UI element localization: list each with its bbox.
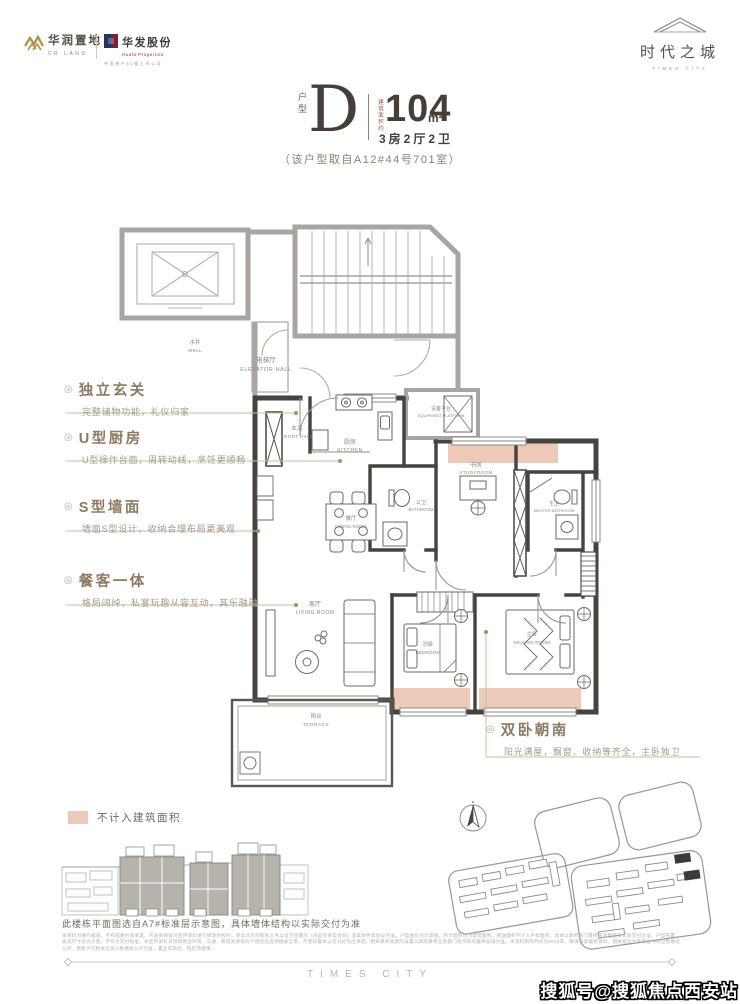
area-unit: m²: [428, 111, 443, 125]
annotation-kitchen-title: U型厨房: [79, 427, 143, 448]
rooms-summary: 3房2厅2卫: [379, 130, 453, 147]
annotation-entrance-desc: 完整储物功能，礼仪归家: [82, 405, 294, 418]
key-plan-caption: 此楼栋平面图选自A7#标准层示意图，具体墙体结构以实际交付为准: [62, 917, 361, 930]
annotation-dining-title: 餐客一体: [79, 570, 147, 591]
label-study-cn: 书房: [470, 461, 482, 469]
label-study-en: STUDYROOM: [459, 470, 492, 475]
label-elevator-hall-en: ELEVATOR HALL: [240, 367, 292, 373]
label-bathroom-cn: 公卫: [416, 500, 426, 506]
timescity-logo: 时代之城 TIMES CITY: [630, 16, 730, 71]
label-bedroom-cn: 次卧: [422, 640, 434, 648]
building-key-plan: [62, 843, 308, 916]
label-master-bath-cn: 主卫: [549, 500, 559, 507]
label-terrace-cn: 阳台: [310, 712, 322, 720]
bullet-icon: ◎: [64, 502, 73, 512]
annotation-entrance: ◎ 独立玄关 完整储物功能，礼仪归家: [64, 379, 294, 418]
label-bathroom-en: BATHROOM: [408, 507, 433, 512]
label-master-bath-en: MASTER BATHROOM: [534, 508, 575, 513]
label-equipment-cn: 设备平台: [431, 405, 451, 412]
label-living-en: LIVING ROOM: [296, 610, 335, 616]
terrace-walls: [232, 700, 392, 786]
area-prefix: 建筑面积约: [376, 99, 384, 132]
label-kitchen-cn: 厨房: [344, 438, 356, 446]
annotation-dining-desc: 格局阔绰，私宴玩趣从容互动，其乐融融: [82, 596, 294, 609]
legend-label: 不计入建筑面积: [97, 810, 181, 825]
legend: 不计入建筑面积: [68, 810, 181, 825]
annotation-wall-desc: 墙面S型设计，收纳合理布局更美观: [82, 522, 294, 535]
stair-symbol: [300, 231, 452, 334]
disclaimer-text: 本资料为要约邀请，不构成要约或承诺。开发商保留对宣传资料进行修改的权利，买卖双方…: [62, 933, 680, 952]
label-master-room-en: MASTER ROOM: [514, 640, 550, 646]
annotation-wall: ◎ S型墙面 墙面S型设计，收纳合理布局更美观: [64, 496, 294, 535]
huafa-square-icon: [104, 34, 118, 48]
annotation-kitchen-desc: U型操作台面，周转动线，烹饪更顺畅: [82, 453, 294, 466]
huafa-tagline: 中国地产50强上市公司: [104, 61, 172, 67]
bullet-icon: ◎: [64, 576, 73, 586]
bullet-icon: ◎: [64, 385, 73, 395]
ladder-shaft: [581, 552, 596, 596]
compass-icon: [460, 801, 486, 831]
annotation-kitchen: ◎ U型厨房 U型操作台面，周转动线，烹饪更顺畅: [64, 427, 294, 466]
annotation-dining: ◎ 餐客一体 格局阔绰，私宴玩趣从容互动，其乐融融: [64, 570, 294, 609]
label-well-en: WELL: [188, 348, 202, 353]
huafa-sub: Huafa Properties: [122, 52, 172, 57]
huafa-logo: 华发股份 Huafa Properties 中国地产50强上市公司: [104, 34, 172, 67]
label-terrace-en: TERRACE: [303, 722, 329, 728]
floorplan-flyer-page: 水井 WELL 电梯厅 ELEVATOR HALL 玄关 FRONT HALL …: [0, 0, 740, 1004]
label-dining-en: DINING ROOM: [335, 524, 367, 529]
annotation-entrance-title: 独立玄关: [79, 379, 147, 400]
label-dining-cn: 餐厅: [345, 514, 357, 522]
crland-sub: CR LAND: [48, 51, 102, 57]
label-kitchen-en: KITCHEN: [337, 448, 362, 454]
huafa-name: 华发股份: [122, 34, 172, 50]
label-master-room-cn: 主卧: [526, 630, 538, 638]
label-well-cn: 水井: [189, 338, 201, 346]
annotation-south-bedrooms: ◎ 双卧朝南 阳光满屋，飘窗、收纳等齐全，主卧独卫: [486, 719, 716, 758]
label-living-cn: 客厅: [309, 600, 321, 608]
bathroom-fixtures: [383, 490, 410, 547]
timescity-name: 时代之城: [630, 41, 730, 62]
unit-source-note: （该户型取自A12#44号701室）: [0, 151, 740, 167]
annotation-south-bedrooms-desc: 阳光满屋，飘窗、收纳等齐全，主卧独卫: [504, 745, 716, 758]
annotation-wall-title: S型墙面: [79, 496, 142, 517]
bullet-icon: ◎: [486, 725, 495, 735]
unit-letter: D: [308, 78, 359, 142]
master-bedroom-furniture: [506, 608, 591, 689]
crland-logo: 华润置地 CR LAND: [24, 32, 102, 57]
crland-mountain-icon: [24, 32, 44, 54]
annotation-south-bedrooms-title: 双卧朝南: [501, 719, 569, 740]
legend-highlight-swatch: [68, 811, 88, 824]
elevator-symbol: [137, 244, 234, 308]
label-bedroom-en: BEDROOM: [416, 650, 441, 656]
title-divider: [368, 94, 369, 140]
crland-name: 华润置地: [48, 32, 102, 48]
bedroom-furniture: [404, 592, 473, 687]
timescity-sub: TIMES CITY: [630, 66, 730, 71]
watermark: 搜狐号@搜狐焦点西安站: [540, 977, 738, 1002]
site-plan: [447, 780, 712, 951]
label-elevator-hall-cn: 电梯厅: [256, 355, 276, 364]
logo-divider: [96, 35, 97, 59]
label-equipment-en: EQUIPMENT PLATFORM: [418, 413, 464, 418]
bullet-icon: ◎: [64, 433, 73, 443]
timescity-roof-icon: [652, 16, 708, 36]
footer-rule: [65, 959, 676, 966]
